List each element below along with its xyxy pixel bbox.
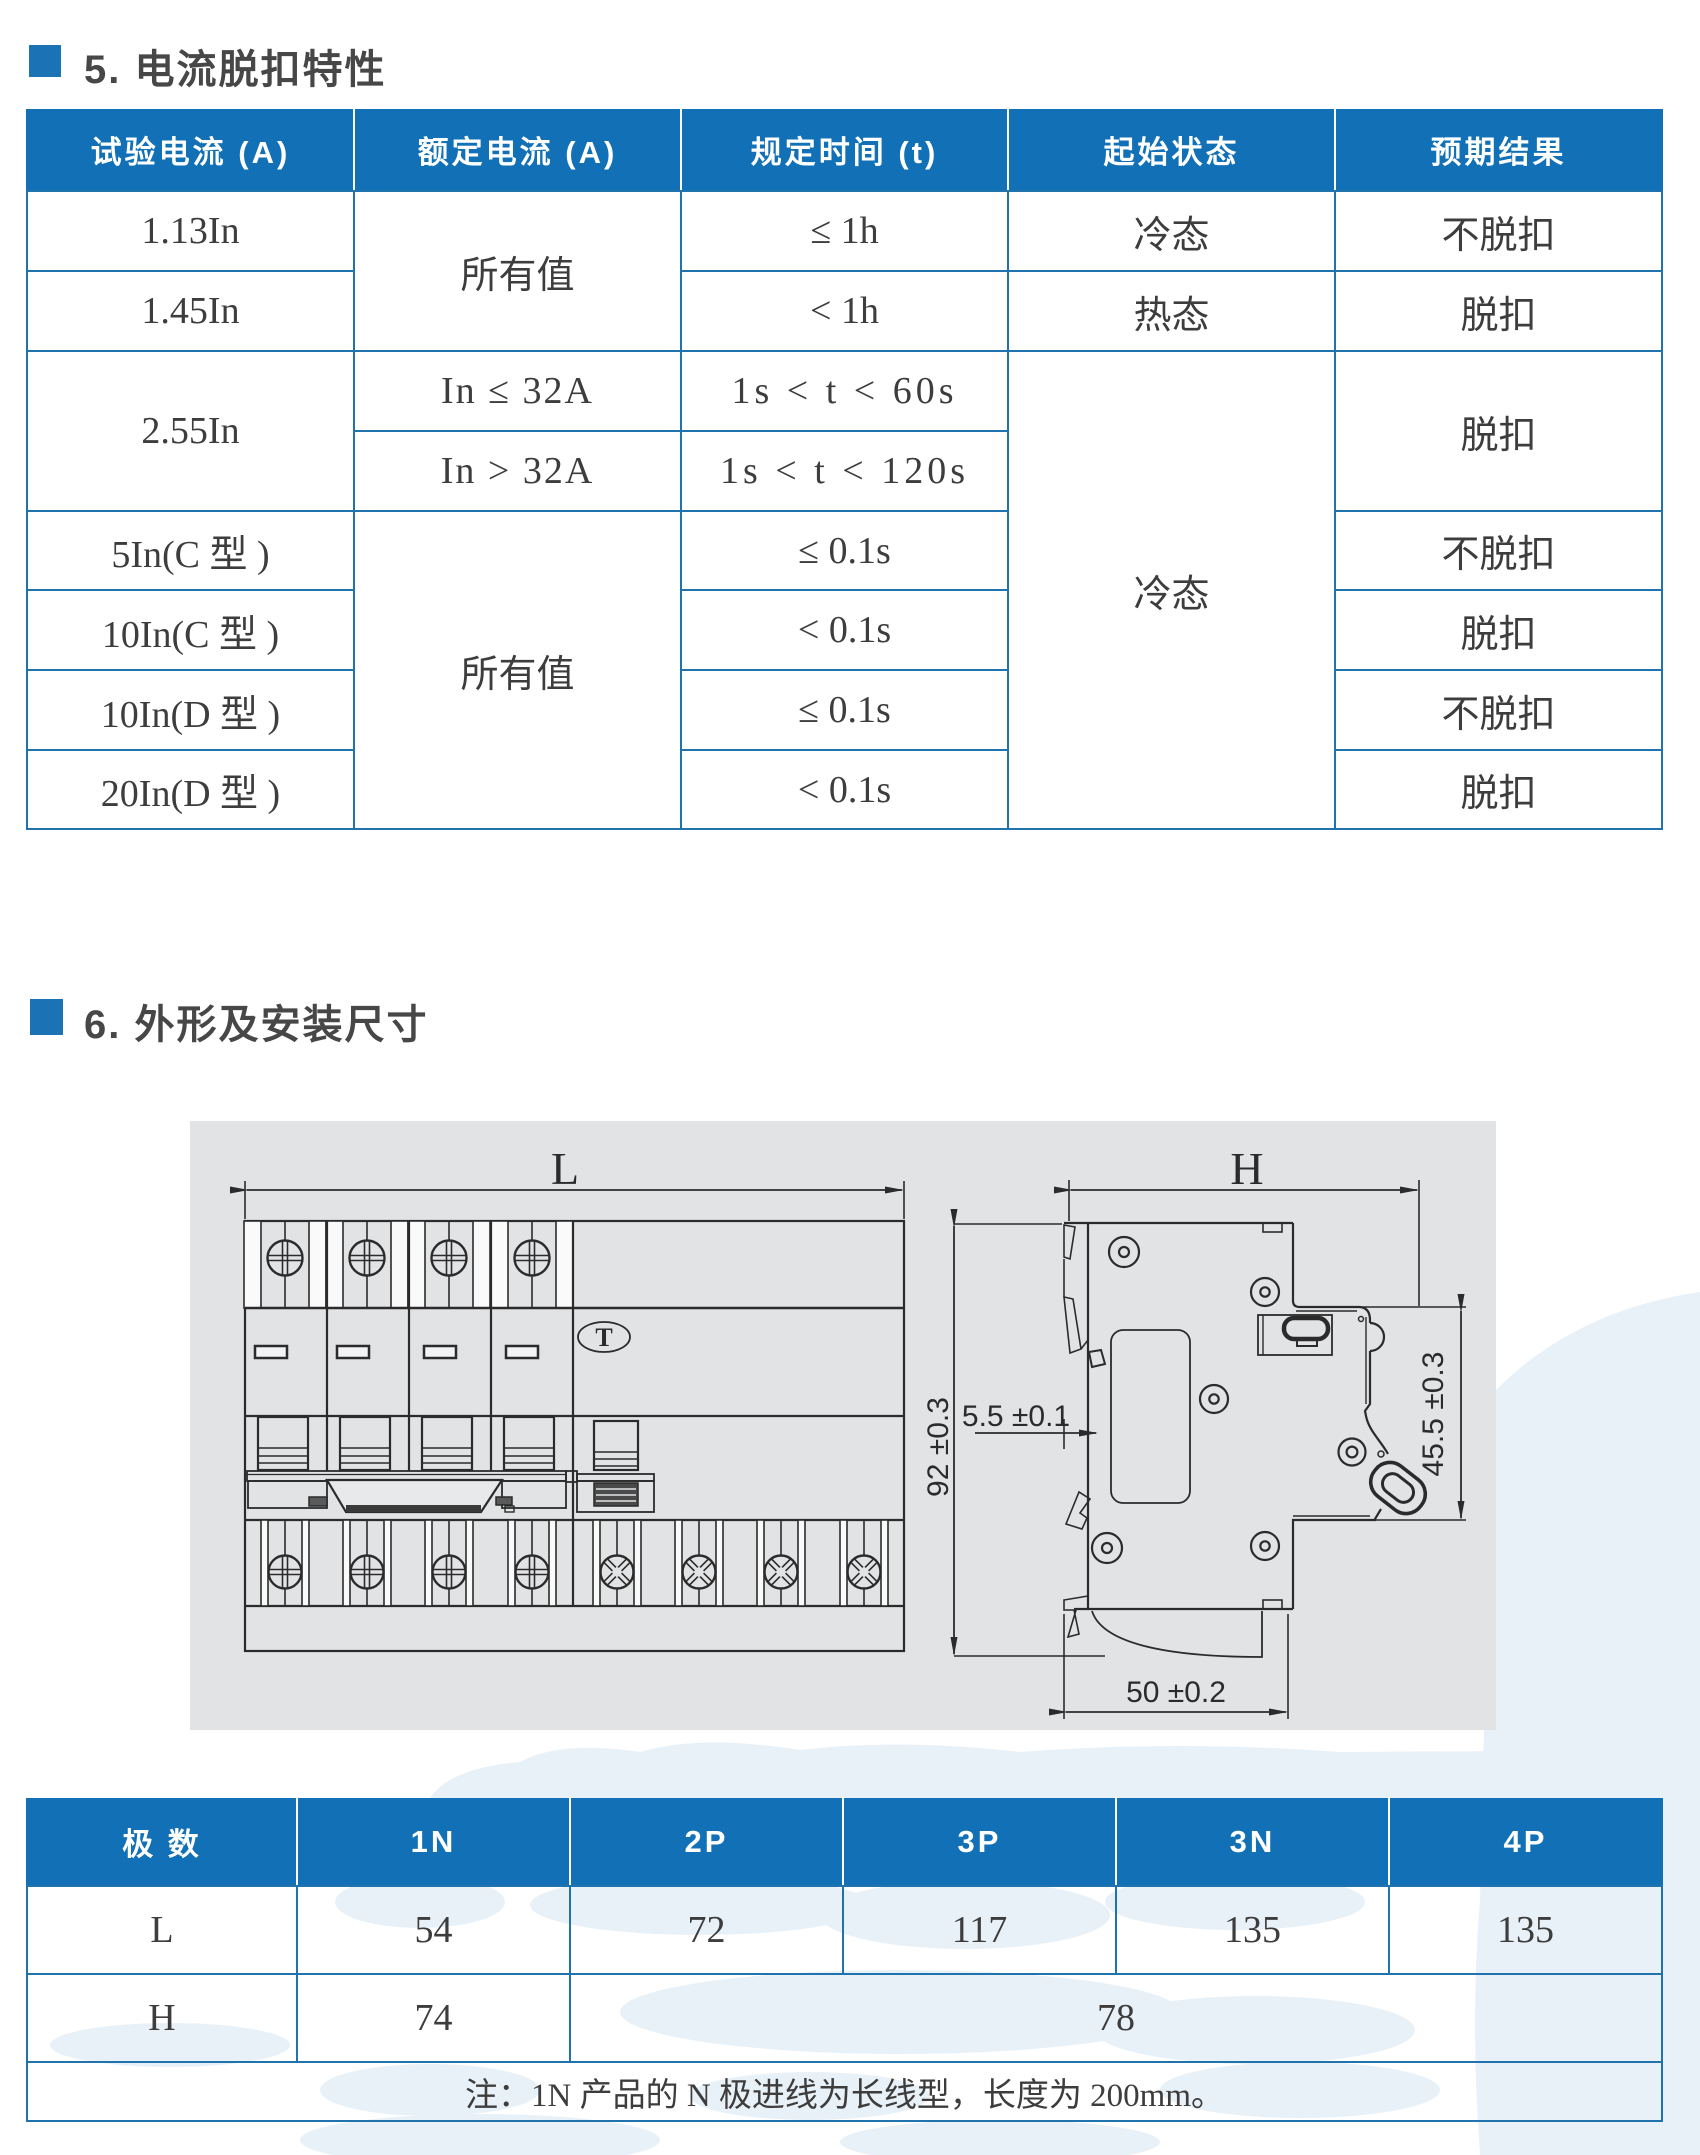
svg-text:H: H xyxy=(1230,1143,1263,1194)
svg-text:5.5 ±0.1: 5.5 ±0.1 xyxy=(962,1400,1070,1433)
svg-text:50 ±0.2: 50 ±0.2 xyxy=(1126,1676,1226,1709)
svg-text:T: T xyxy=(595,1323,612,1352)
svg-text:45.5 ±0.3: 45.5 ±0.3 xyxy=(1417,1352,1450,1477)
svg-text:92 ±0.3: 92 ±0.3 xyxy=(922,1397,955,1497)
svg-text:L: L xyxy=(551,1143,579,1194)
